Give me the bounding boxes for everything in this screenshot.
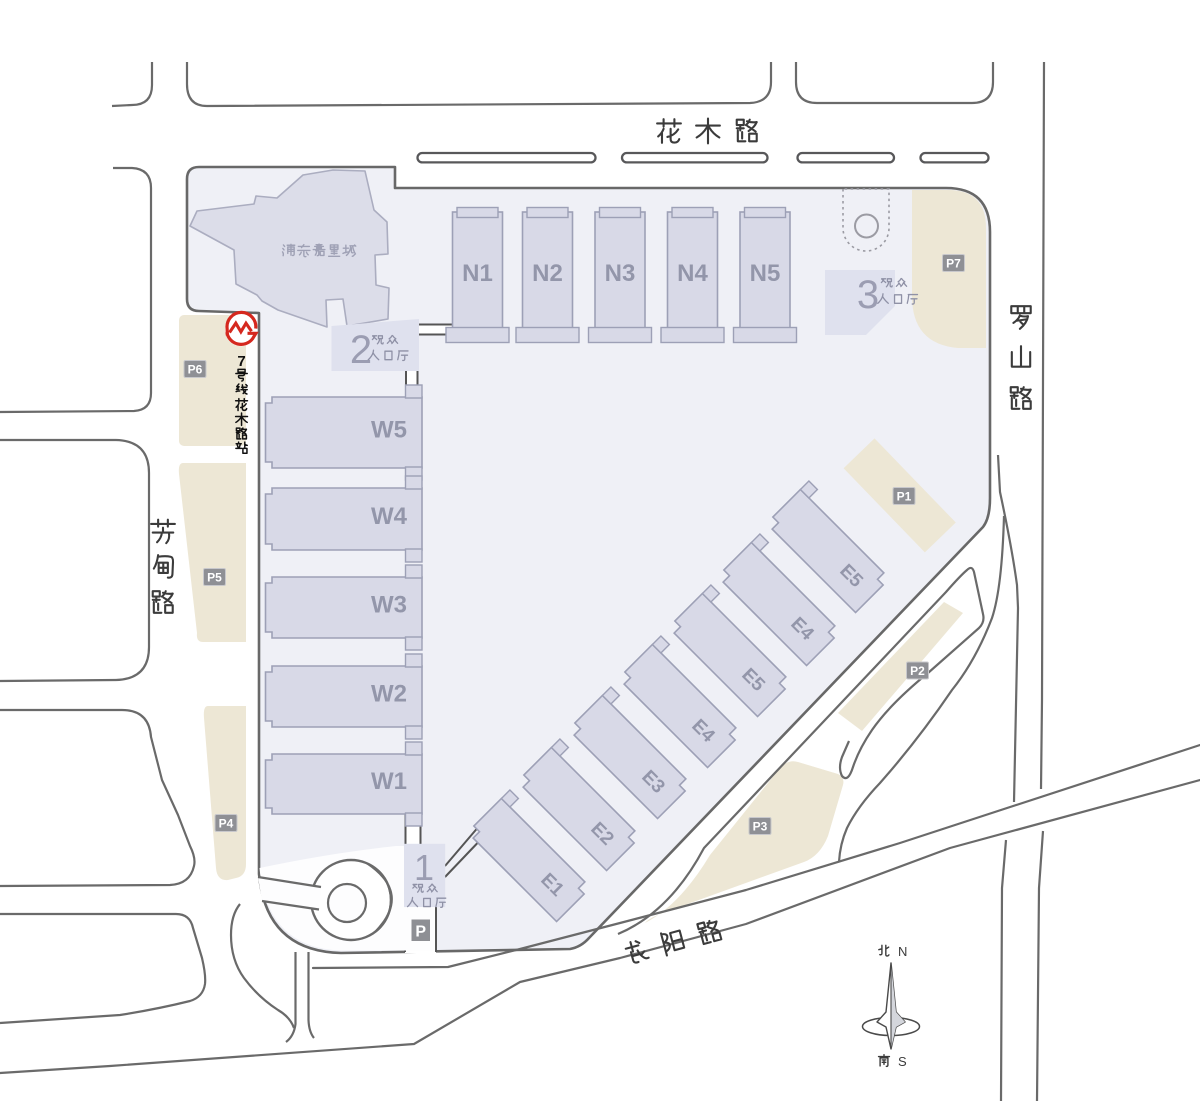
svg-text:1: 1	[414, 847, 434, 888]
svg-text:N2: N2	[532, 260, 563, 287]
svg-text:N1: N1	[462, 260, 493, 287]
svg-text:N5: N5	[750, 260, 781, 287]
svg-text:P6: P6	[188, 362, 203, 376]
svg-text:W4: W4	[371, 503, 408, 530]
svg-text:7: 7	[237, 353, 245, 370]
svg-text:P2: P2	[910, 664, 925, 678]
svg-text:2: 2	[350, 328, 372, 372]
svg-text:W1: W1	[371, 768, 407, 795]
svg-text:W5: W5	[371, 417, 407, 444]
svg-text:W2: W2	[371, 681, 407, 708]
svg-text:W3: W3	[371, 592, 407, 619]
svg-text:N: N	[898, 944, 907, 959]
svg-text:P4: P4	[219, 816, 234, 830]
svg-text:N3: N3	[605, 260, 636, 287]
svg-text:P: P	[415, 924, 426, 941]
svg-text:P7: P7	[946, 256, 961, 270]
svg-text:P1: P1	[897, 489, 912, 503]
svg-text:3: 3	[857, 273, 879, 317]
svg-text:N4: N4	[677, 260, 708, 287]
svg-text:P3: P3	[753, 819, 768, 833]
svg-text:P5: P5	[207, 570, 222, 584]
svg-text:S: S	[898, 1054, 907, 1069]
